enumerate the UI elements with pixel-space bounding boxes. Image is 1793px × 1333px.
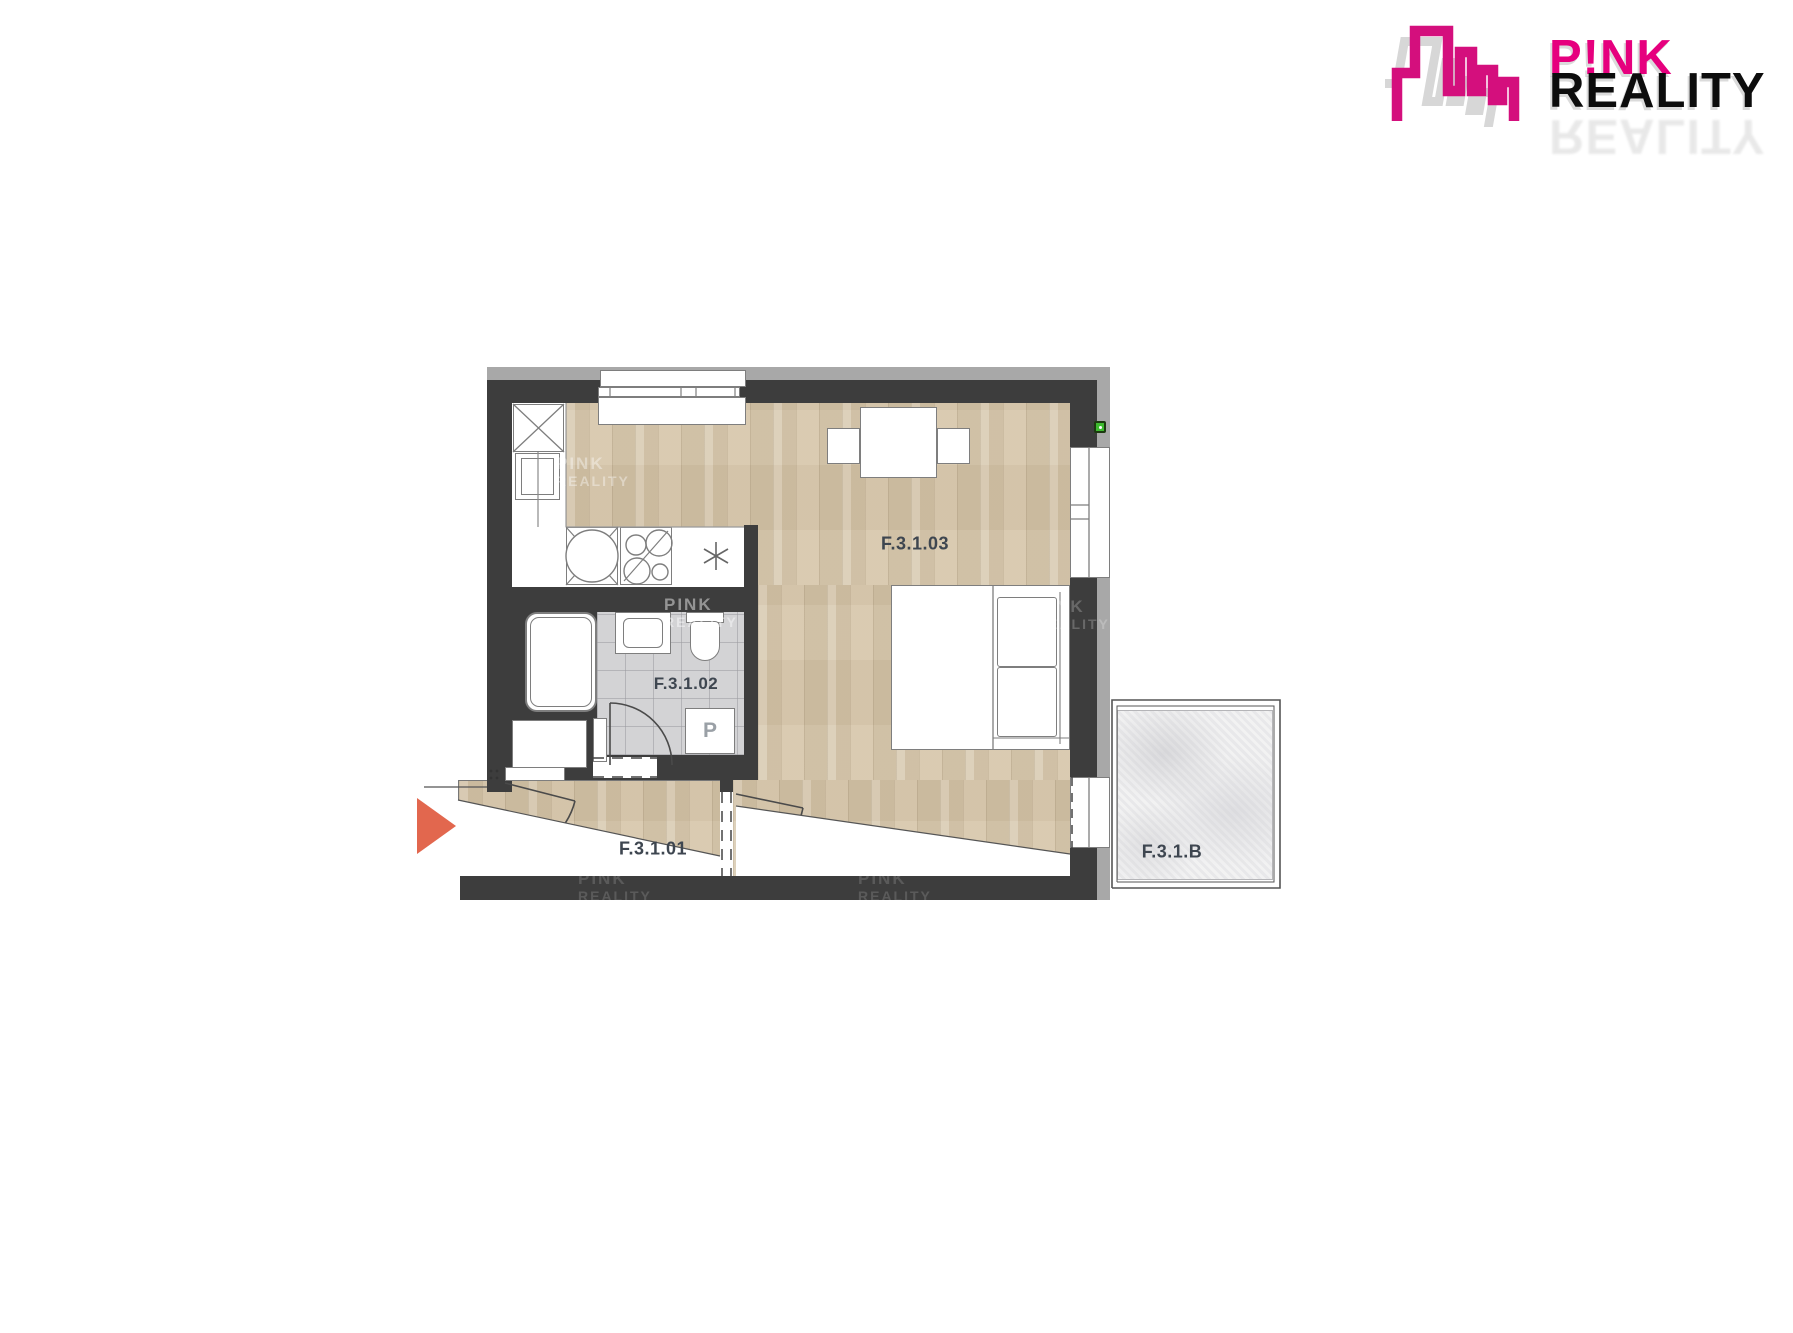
living-door-leaf: [736, 794, 803, 808]
burner-icon: [624, 558, 650, 584]
plan-line-overlay: [0, 0, 1793, 1333]
floor-plan-page: P: [0, 0, 1793, 1333]
snowflake-icon: [704, 542, 728, 570]
burner-icon: [626, 535, 646, 555]
utility-marker: [1094, 421, 1106, 433]
bathroom-door-arc: [610, 703, 672, 765]
room-label-balcony: F.3.1.B: [1142, 842, 1203, 863]
burner-icon: [652, 564, 668, 580]
entry-door-leaf: [505, 783, 575, 801]
utility-marker-dot: [1099, 426, 1102, 429]
room-label-bathroom: F.3.1.02: [654, 674, 719, 694]
entrance-arrow-icon: [417, 798, 456, 854]
brand-logo: P!NK REALITY REALITY: [1290, 10, 1790, 160]
sink-bowl-icon: [566, 530, 618, 582]
burner-icon: [646, 530, 672, 556]
logo-reflection: REALITY: [1549, 108, 1766, 164]
city-skyline-icon: [1385, 22, 1550, 127]
room-label-living: F.3.1.03: [881, 534, 949, 555]
room-label-hallway: F.3.1.01: [619, 839, 687, 860]
